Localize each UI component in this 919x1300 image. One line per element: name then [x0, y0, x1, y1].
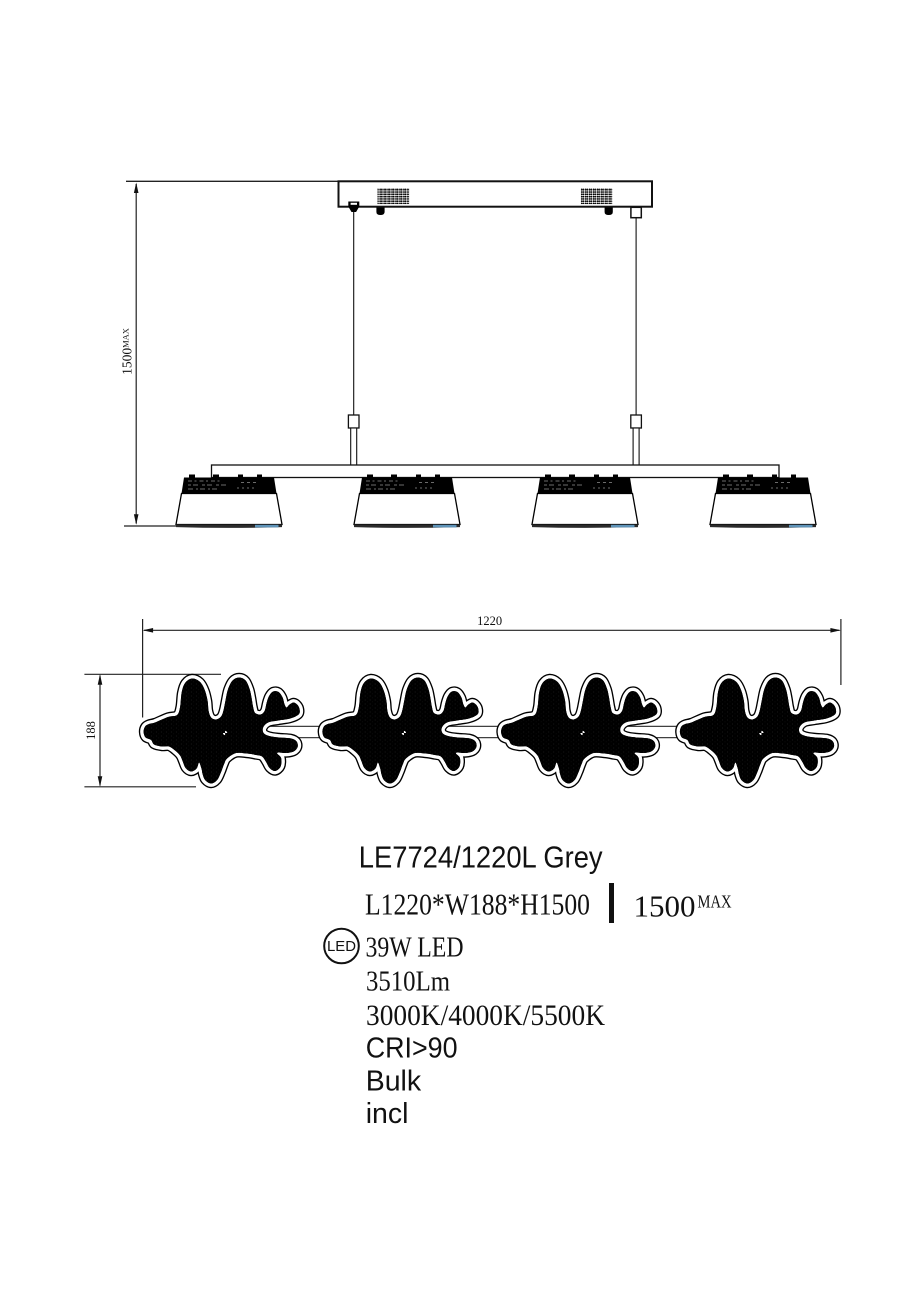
svg-text:3000K/4000K/5500K: 3000K/4000K/5500K — [366, 999, 605, 1032]
svg-text:3510Lm: 3510Lm — [366, 967, 450, 998]
svg-text:incl: incl — [366, 1098, 409, 1130]
svg-text:MAX: MAX — [698, 891, 732, 911]
svg-text:CRI>90: CRI>90 — [366, 1033, 458, 1065]
svg-text:1500MAX: 1500MAX — [120, 328, 135, 375]
svg-text:LE7724/1220L Grey: LE7724/1220L Grey — [359, 841, 603, 875]
svg-text:1220: 1220 — [477, 614, 502, 628]
svg-text:Bulk: Bulk — [366, 1065, 422, 1097]
svg-text:188: 188 — [84, 721, 98, 740]
svg-text:L1220*W188*H1500: L1220*W188*H1500 — [365, 887, 590, 922]
svg-text:39W LED: 39W LED — [366, 933, 464, 964]
svg-text:LED: LED — [327, 939, 356, 955]
svg-text:1500: 1500 — [634, 889, 696, 924]
